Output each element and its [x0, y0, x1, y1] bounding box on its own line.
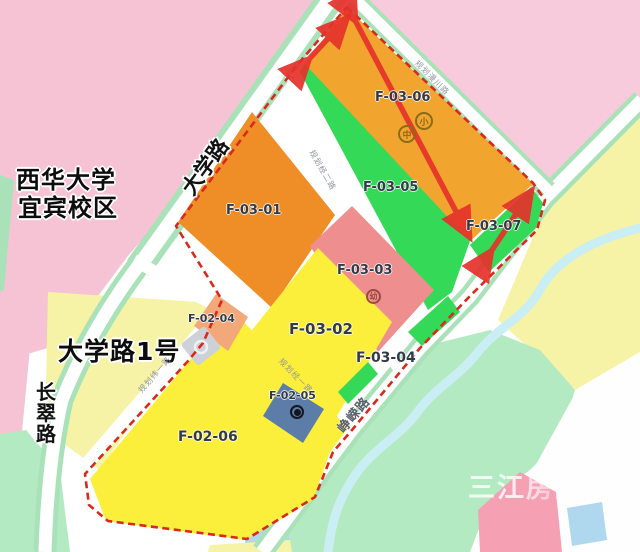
- planning-map: 西华大学 宜宾校区 大学路1号 大学路 长 翠 路 峥嵘路 规划漫川路 规划经二…: [0, 0, 640, 552]
- kindergarten-char: 幼: [370, 291, 378, 302]
- campus-label-line2: 宜宾校区: [18, 188, 118, 223]
- parcel-label-f-02-05: F-02-05: [269, 389, 316, 402]
- changcui-char-3: 路: [36, 424, 56, 445]
- region-blue-patch-1: [567, 502, 607, 546]
- changcui-char-2: 翠: [36, 403, 56, 424]
- parcel-label-f-02-04: F-02-04: [188, 312, 235, 325]
- parcel-label-f-02-06: F-02-06: [178, 429, 238, 445]
- parcel-label-f-03-07: F-03-07: [466, 219, 521, 234]
- parcel-label-f-03-05: F-03-05: [363, 180, 418, 195]
- kindergarten-icon: 幼: [366, 289, 381, 304]
- parcel-label-f-03-04: F-03-04: [356, 350, 416, 366]
- changcui-char-1: 长: [36, 382, 56, 403]
- parcel-label-f-03-03: F-03-03: [337, 263, 392, 278]
- road-label-changcui: 长 翠 路: [36, 382, 56, 445]
- facility-dot-icon: [290, 405, 304, 419]
- parcel-label-f-03-01: F-03-01: [226, 203, 281, 218]
- watermark: 三江房产网: [468, 466, 613, 505]
- middle-school-char: 中: [402, 128, 411, 141]
- middle-school-icon: 中: [398, 125, 416, 143]
- region-pink-strip-left: [0, 348, 30, 434]
- parcel-label-f-03-06: F-03-06: [375, 90, 430, 105]
- primary-school-char: 小: [419, 115, 428, 128]
- primary-school-icon: 小: [415, 112, 433, 130]
- facility-dot-inner: [294, 409, 301, 416]
- parcel-label-f-03-02: F-03-02: [289, 320, 353, 338]
